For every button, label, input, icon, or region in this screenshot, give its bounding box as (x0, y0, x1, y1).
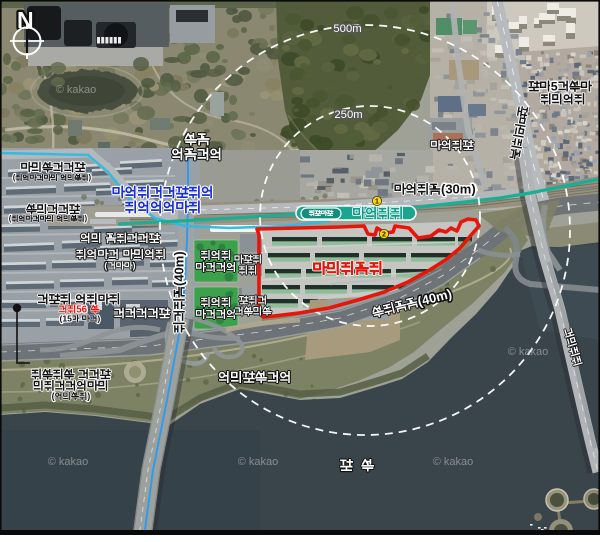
svg-text:(: ( (13, 173, 16, 182)
svg-text:© kakao: © kakao (433, 456, 474, 468)
svg-text:): ) (133, 261, 136, 271)
svg-text:(30m): (30m) (441, 182, 476, 197)
svg-text:(: ( (52, 391, 55, 401)
svg-text:): ) (89, 173, 92, 182)
svg-text:© kakao: © kakao (56, 84, 97, 96)
svg-text:(: ( (9, 214, 12, 223)
svg-text:56: 56 (76, 304, 87, 315)
svg-text:5: 5 (551, 79, 558, 93)
svg-text:): ) (85, 214, 88, 223)
svg-text:250m: 250m (334, 109, 362, 121)
svg-text:(15: (15 (60, 314, 73, 324)
svg-text:): ) (97, 314, 100, 324)
svg-text:© kakao: © kakao (238, 456, 279, 468)
svg-text:): ) (87, 391, 90, 401)
svg-text:500m: 500m (333, 23, 361, 35)
svg-text:(40m): (40m) (172, 251, 187, 286)
svg-text:1: 1 (375, 199, 379, 206)
svg-text:© kakao: © kakao (508, 346, 549, 358)
svg-text:© kakao: © kakao (48, 456, 89, 468)
svg-text:2: 2 (382, 232, 386, 239)
